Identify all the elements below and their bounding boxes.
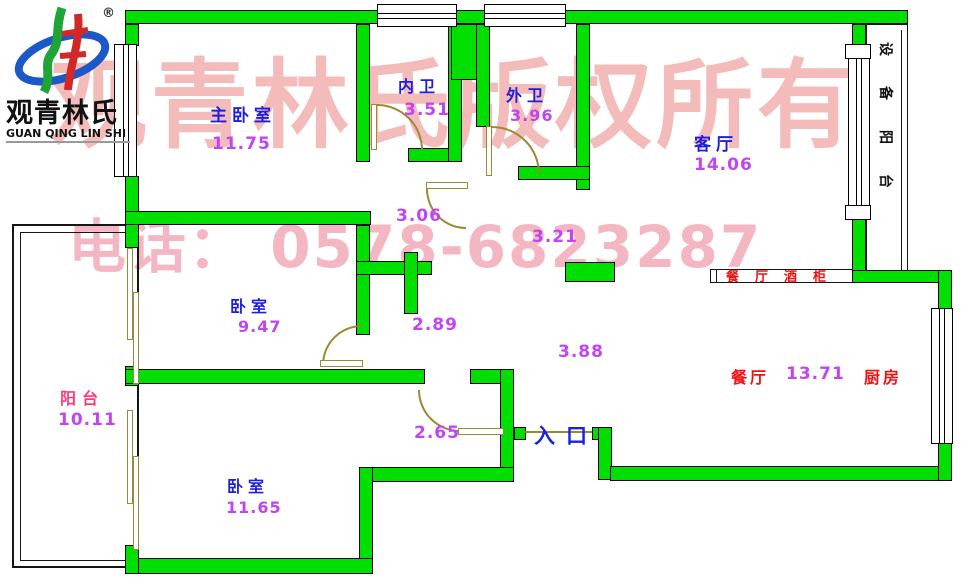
room-label-living-room: 客厅 bbox=[694, 130, 738, 155]
room-area-balcony: 10.11 bbox=[58, 410, 117, 430]
wall-segment bbox=[125, 10, 383, 24]
door-leaf bbox=[486, 126, 492, 176]
room-label-outer-bath: 外卫 bbox=[506, 82, 548, 106]
window-symbol bbox=[484, 4, 566, 27]
floor-plan: 观青林氏版权所有 电话： 0578-6823287 ® 观青林氏 GUAN QI… bbox=[0, 0, 963, 583]
room-area-dining: 13.71 bbox=[786, 364, 845, 384]
room-area-bedroom-low: 11.65 bbox=[226, 498, 282, 517]
wall-segment bbox=[500, 369, 514, 468]
room-label-master-bedroom: 主卧室 bbox=[210, 101, 276, 126]
brand-name-en: GUAN QING LIN SHI bbox=[6, 127, 130, 143]
wall-pillar bbox=[565, 262, 615, 282]
dimension-label: 2.89 bbox=[412, 315, 458, 335]
room-label-inner-bath: 内卫 bbox=[398, 73, 440, 97]
wall-segment bbox=[514, 427, 526, 440]
door-arc bbox=[322, 325, 362, 365]
room-area-bedroom-mid: 9.47 bbox=[238, 317, 281, 336]
room-area-outer-bath: 3.96 bbox=[510, 106, 553, 125]
brand-logo: ® 观青林氏 GUAN QING LIN SHI bbox=[6, 4, 130, 143]
door-leaf bbox=[426, 182, 468, 189]
dimension-label: 3.21 bbox=[532, 227, 578, 247]
dimension-label: 2.65 bbox=[414, 423, 460, 443]
sliding-door bbox=[133, 292, 139, 384]
door-leaf bbox=[458, 428, 504, 435]
wall-segment bbox=[560, 10, 908, 24]
door-leaf bbox=[371, 104, 377, 150]
window-symbol bbox=[848, 58, 870, 206]
window-cap bbox=[845, 44, 871, 59]
wall-segment bbox=[610, 466, 950, 481]
wall-segment bbox=[404, 252, 418, 314]
window-symbol bbox=[377, 4, 457, 27]
door-leaf bbox=[320, 360, 363, 367]
wall-segment bbox=[125, 369, 425, 384]
equipment-balcony-inner-line bbox=[901, 30, 902, 272]
wall-segment bbox=[476, 24, 490, 127]
room-area-master-bedroom: 11.75 bbox=[212, 134, 271, 154]
room-area-inner-bath: 3.51 bbox=[404, 100, 450, 120]
registered-mark-icon: ® bbox=[102, 6, 115, 21]
wall-segment bbox=[125, 211, 371, 225]
window-symbol bbox=[931, 308, 953, 444]
wall-segment bbox=[356, 24, 370, 162]
wall-segment bbox=[125, 558, 373, 574]
wall-segment bbox=[938, 270, 952, 312]
wine-cabinet-label: 餐厅酒柜 bbox=[726, 266, 842, 285]
room-label-balcony: 阳台 bbox=[60, 385, 104, 409]
wall-segment bbox=[356, 225, 370, 335]
entrance-label: 入口 bbox=[534, 420, 598, 450]
wall-segment bbox=[938, 442, 952, 481]
room-label-bedroom-mid: 卧室 bbox=[230, 293, 272, 317]
room-label-bedroom-low: 卧室 bbox=[227, 473, 269, 497]
room-label-dining: 餐厅 bbox=[731, 364, 769, 388]
wall-segment bbox=[125, 224, 139, 248]
window-cap bbox=[845, 205, 871, 220]
room-area-living-room: 14.06 bbox=[694, 155, 753, 175]
wall-segment bbox=[852, 270, 952, 283]
room-label-equipment-balcony: 设备阳台 bbox=[876, 42, 896, 242]
wall-segment bbox=[356, 261, 432, 275]
wall-segment bbox=[360, 467, 514, 482]
dimension-label: 3.06 bbox=[396, 206, 442, 226]
dimension-label: 3.88 bbox=[558, 342, 604, 362]
sliding-door bbox=[133, 456, 139, 550]
room-label-kitchen: 厨房 bbox=[864, 364, 902, 388]
brand-name-cn: 观青林氏 bbox=[6, 100, 130, 127]
